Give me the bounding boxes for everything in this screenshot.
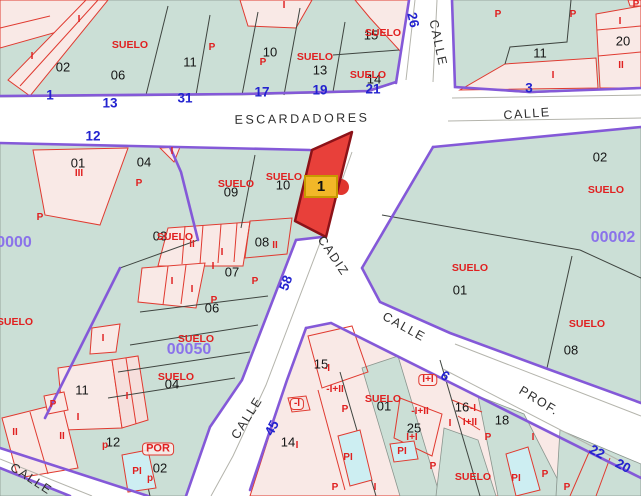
city-block-northeast[interactable] xyxy=(452,0,641,93)
map-canvas[interactable] xyxy=(0,0,641,496)
cadastral-map[interactable]: ESCARDADORESCALLECALLECADIZCALLECALLEPRO… xyxy=(0,0,641,496)
selected-parcel-marker[interactable]: 1 xyxy=(304,175,338,198)
city-block-northwest[interactable] xyxy=(0,0,409,97)
